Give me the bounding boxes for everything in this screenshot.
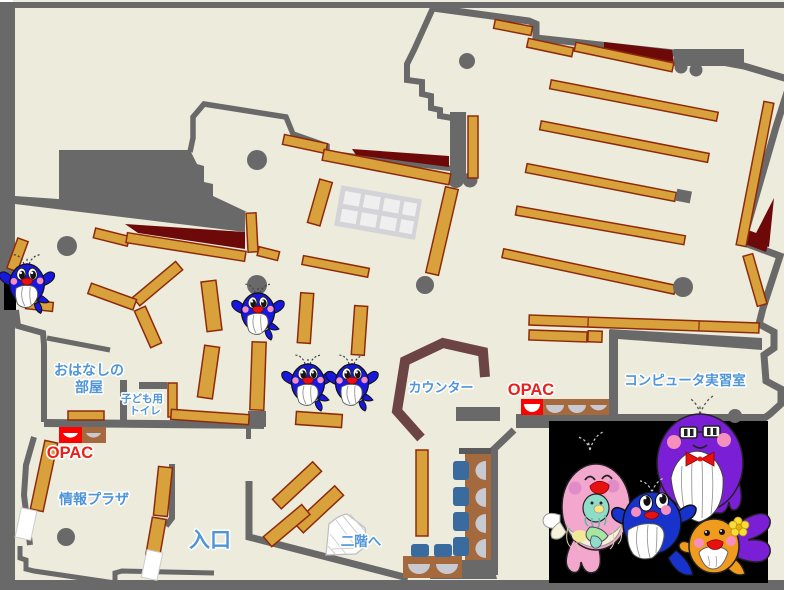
svg-text:カウンター: カウンター (408, 380, 473, 395)
svg-text:子ども用: 子ども用 (121, 392, 163, 405)
svg-text:入口: 入口 (189, 529, 231, 552)
svg-text:二階へ: 二階へ (341, 533, 382, 549)
svg-text:情報プラザ: 情報プラザ (59, 491, 129, 507)
svg-text:おはなしの: おはなしの (54, 362, 124, 378)
svg-text:OPAC: OPAC (508, 381, 555, 399)
svg-text:コンピュータ実習室: コンピュータ実習室 (624, 372, 746, 388)
svg-text:トイレ: トイレ (129, 405, 161, 417)
svg-text:OPAC: OPAC (47, 444, 94, 462)
svg-text:部屋: 部屋 (75, 379, 103, 395)
